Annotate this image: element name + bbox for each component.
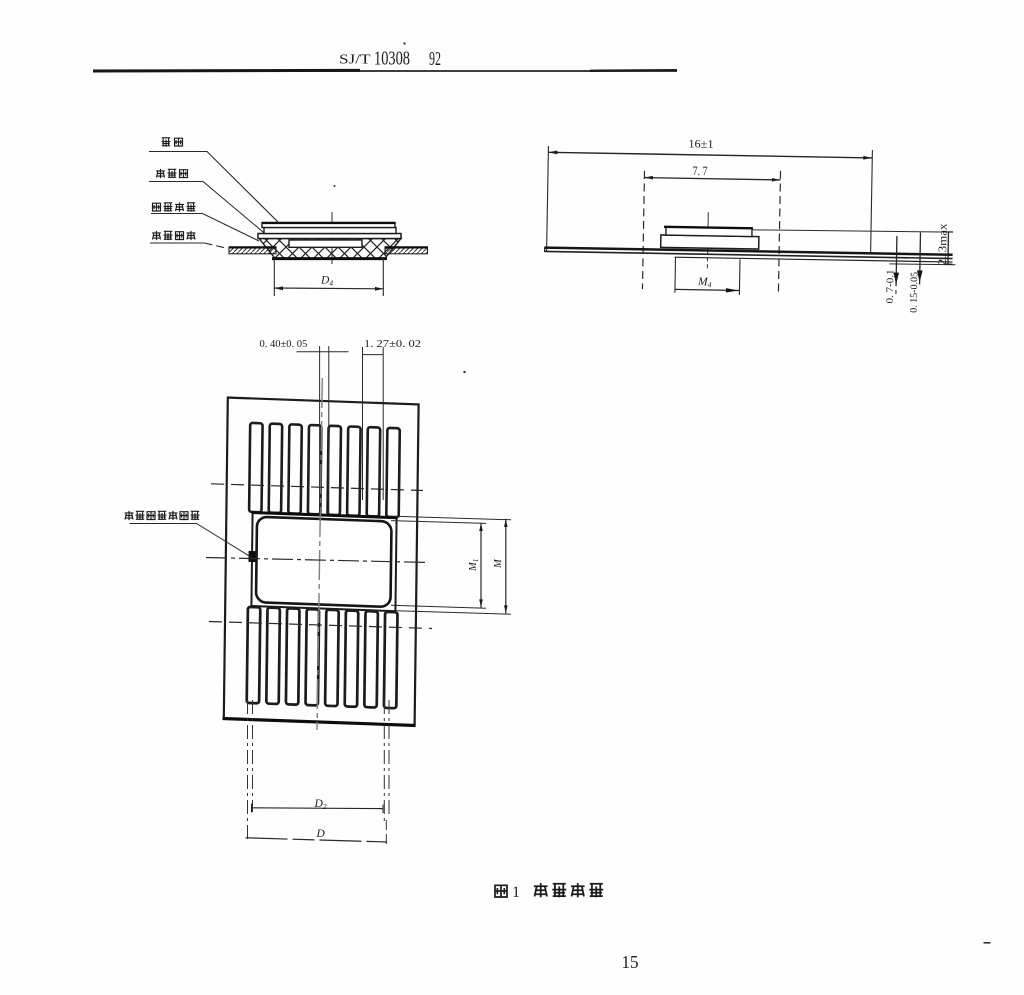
svg-text:M: M: [493, 558, 504, 569]
svg-text:7. 7: 7. 7: [692, 163, 708, 178]
svg-text:M1: M1: [468, 559, 480, 572]
svg-text:D: D: [316, 828, 326, 840]
svg-text:0. 7-0.1: 0. 7-0.1: [885, 269, 897, 303]
svg-text:D2: D2: [314, 798, 327, 811]
svg-text:16±1: 16±1: [688, 138, 713, 150]
svg-text:SJ/T: SJ/T: [339, 53, 371, 68]
svg-text:D4: D4: [320, 275, 333, 288]
svg-text:M4: M4: [697, 276, 712, 289]
svg-text:92: 92: [429, 48, 441, 70]
svg-text:10308: 10308: [374, 48, 410, 70]
svg-text:1. 27±0. 02: 1. 27±0. 02: [364, 339, 421, 350]
svg-text:15: 15: [622, 952, 639, 972]
svg-text:0. 15-0.05: 0. 15-0.05: [909, 272, 921, 313]
svg-text:2. 3max: 2. 3max: [937, 223, 950, 265]
svg-text:0. 40±0. 05: 0. 40±0. 05: [260, 339, 308, 350]
svg-text:1: 1: [512, 884, 520, 901]
